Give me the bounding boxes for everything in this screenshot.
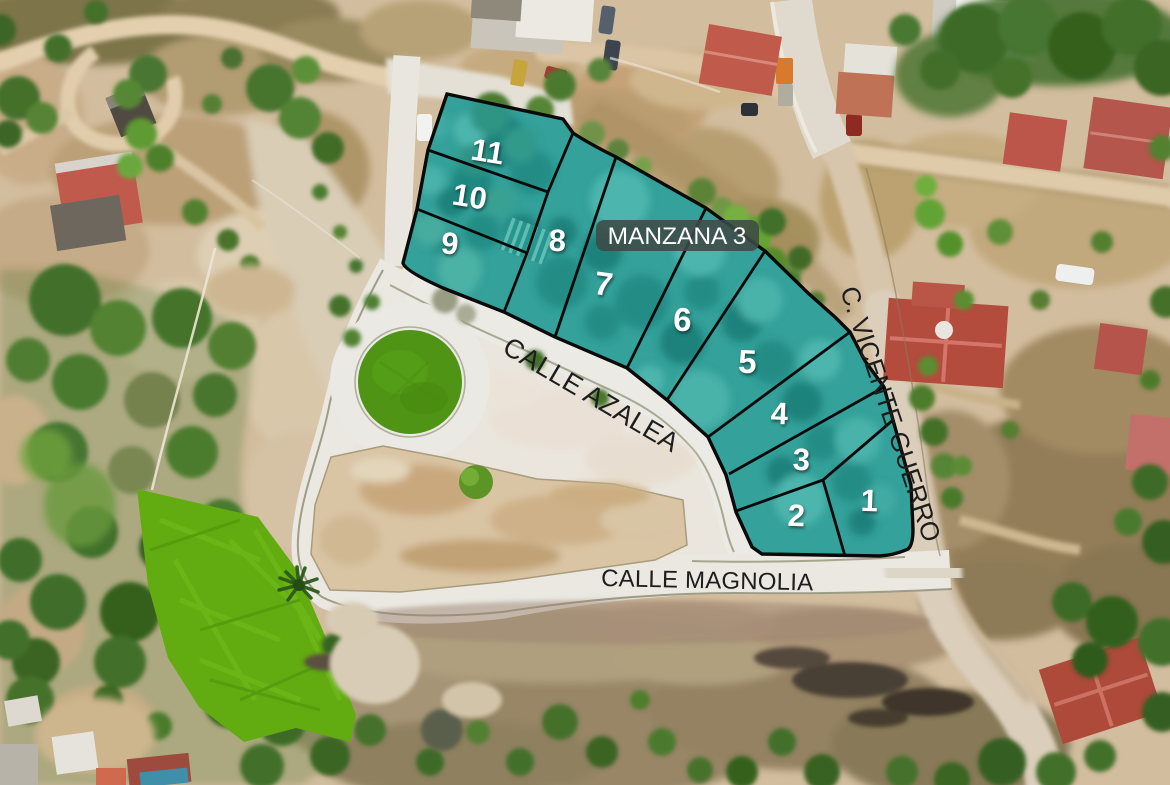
- svg-text:3: 3: [792, 442, 810, 478]
- svg-text:5: 5: [738, 343, 758, 381]
- svg-text:10: 10: [450, 177, 490, 217]
- svg-text:2: 2: [787, 498, 805, 534]
- svg-text:4: 4: [770, 396, 789, 432]
- svg-text:MANZANA 3: MANZANA 3: [608, 223, 747, 250]
- svg-text:6: 6: [673, 301, 693, 339]
- svg-text:8: 8: [548, 223, 566, 259]
- svg-text:1: 1: [860, 483, 878, 519]
- svg-text:11: 11: [469, 132, 507, 172]
- svg-text:9: 9: [440, 225, 460, 261]
- svg-text:CALLE MAGNOLIA: CALLE MAGNOLIA: [601, 565, 814, 596]
